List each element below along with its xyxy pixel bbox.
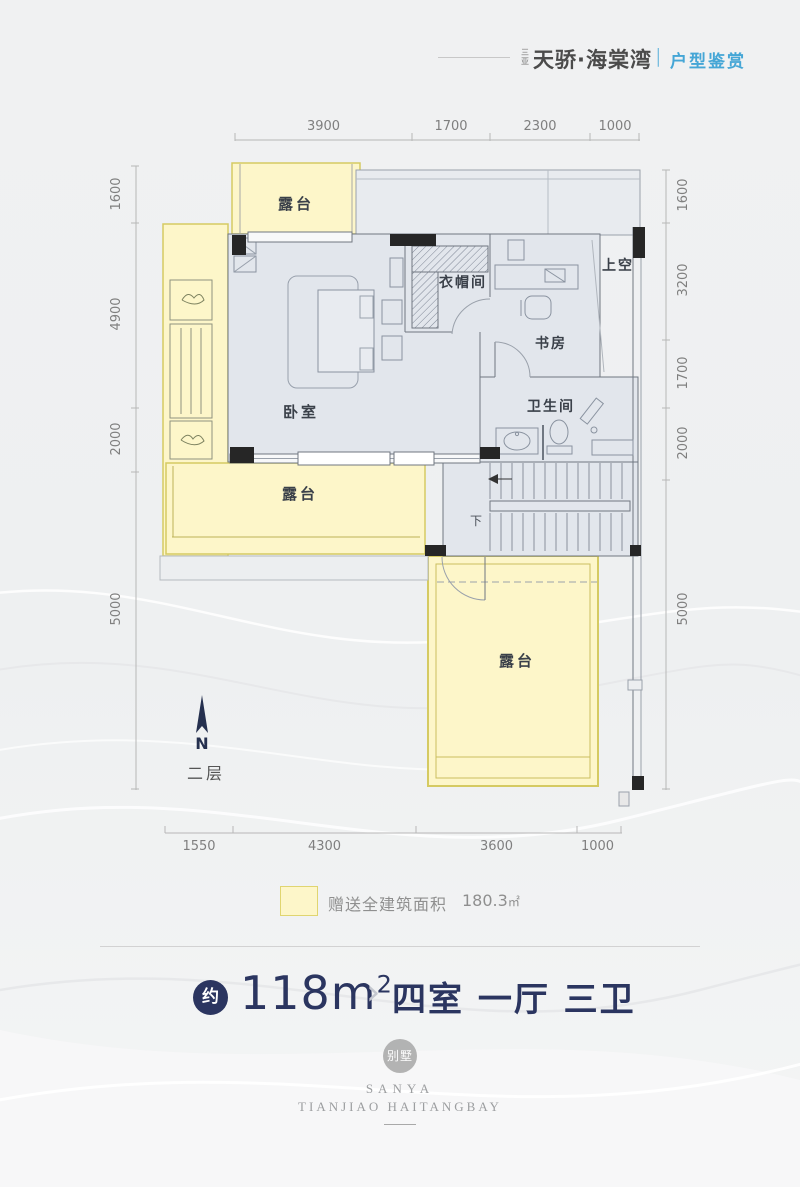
- study-furniture: [495, 240, 578, 319]
- dim-bottom-1: 1550: [165, 839, 233, 855]
- legend-label: 赠送全建筑面积: [328, 891, 447, 915]
- dimension-lines: [131, 133, 670, 833]
- dim-right-5: 5000: [676, 587, 692, 631]
- floor-label: 二层: [175, 760, 237, 784]
- brand-prefix: 三亚: [521, 48, 531, 66]
- bed: [234, 238, 403, 388]
- dim-top-2: 1700: [412, 119, 490, 135]
- room-cloakroom: 衣帽间: [420, 272, 506, 292]
- room-bathroom: 卫生间: [511, 396, 591, 416]
- brand-logo: 天骄·海棠湾: [533, 44, 652, 74]
- dim-bottom-2: 4300: [233, 839, 416, 855]
- north-needle: [196, 695, 208, 733]
- dim-top-3: 2300: [490, 119, 590, 135]
- dim-right-2: 3200: [676, 258, 692, 302]
- stairs-down-label: 下: [470, 512, 482, 529]
- poster-page: { "colors": { "accent_blue": "#45a6d6", …: [0, 0, 800, 1187]
- roof-edge-band: [160, 556, 428, 580]
- legend-swatch: [280, 886, 318, 916]
- room-terrace-mid: 露台: [260, 483, 340, 504]
- dim-left-1: 1600: [109, 172, 125, 216]
- legend-value-number: 180.3: [462, 891, 508, 910]
- dim-left-3: 2000: [109, 417, 125, 461]
- watermark-rule: [384, 1124, 416, 1125]
- stairs: [488, 463, 630, 551]
- dim-right-3: 1700: [676, 351, 692, 395]
- section-title: 户型鉴赏: [670, 47, 746, 72]
- watermark-line2: TIANJIAO HAITANGBAY: [0, 1099, 800, 1115]
- chevron-icon: ›: [366, 972, 380, 1013]
- room-study: 书房: [511, 333, 591, 353]
- layout-description: 四室 一厅 三卫: [392, 972, 636, 1021]
- legend-value: 180.3㎡: [462, 891, 520, 910]
- dim-left-4: 5000: [109, 587, 125, 631]
- wall-chunks: [230, 227, 645, 790]
- dim-right-4: 2000: [676, 421, 692, 465]
- header-separator: |: [655, 45, 661, 67]
- window-band: [230, 232, 480, 465]
- room-terrace-top: 露台: [256, 193, 336, 214]
- dim-bottom-3: 3600: [416, 839, 577, 855]
- dim-right-1: 1600: [676, 173, 692, 217]
- north-label: N: [188, 734, 216, 753]
- watermark-line1: SANYA: [0, 1081, 800, 1097]
- header-rule: [438, 57, 510, 58]
- room-void-above: 上空: [585, 255, 651, 275]
- approx-badge: 约: [193, 980, 228, 1015]
- dim-top-1: 3900: [235, 119, 412, 135]
- roof-strip: [356, 170, 640, 235]
- right-wall: [619, 556, 642, 806]
- room-bedroom: 卧室: [261, 401, 341, 422]
- section-divider: [100, 946, 700, 947]
- planters: [170, 280, 212, 459]
- legend-unit: ㎡: [508, 895, 520, 909]
- area-number: 118m: [240, 966, 377, 1020]
- room-terrace-bottom: 露台: [477, 650, 557, 671]
- villa-badge: 别墅: [383, 1039, 417, 1073]
- bonus-areas: [163, 163, 598, 786]
- dim-left-2: 4900: [109, 292, 125, 336]
- dim-bottom-4: 1000: [570, 839, 625, 855]
- dim-top-4: 1000: [590, 119, 640, 135]
